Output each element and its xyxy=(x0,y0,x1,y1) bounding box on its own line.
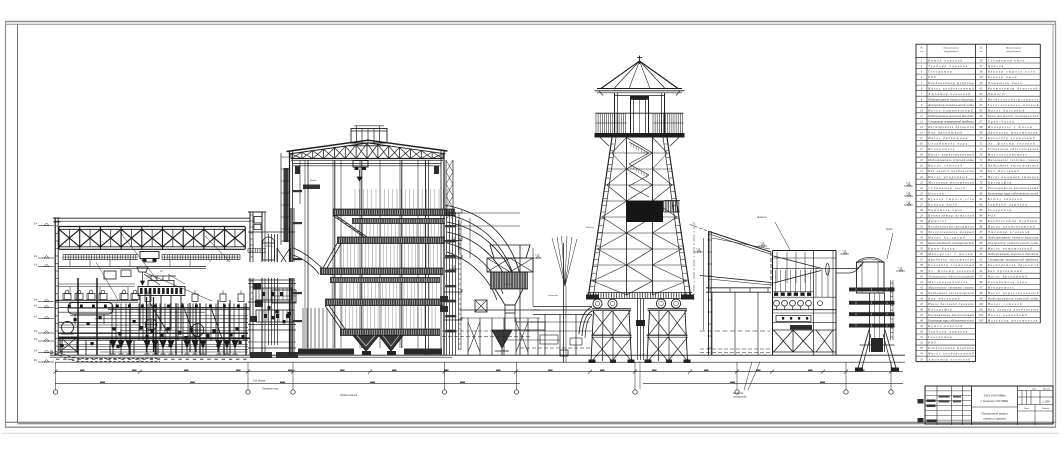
svg-text:Подъемник пассажирский: Подъемник пассажирский xyxy=(927,290,974,295)
svg-text:Мельница молотковая: Мельница молотковая xyxy=(987,319,1038,323)
svg-text:Эжектор основной: Эжектор основной xyxy=(928,91,970,96)
svg-text:Подогреватель высокого давлени: Подогреватель высокого давления xyxy=(927,114,974,118)
svg-text:Монорельс с талью: Монорельс с талью xyxy=(987,125,1033,129)
svg-text:Вентилятор дутьевой: Вентилятор дутьевой xyxy=(988,85,1038,90)
svg-text:Ось здания: Ось здания xyxy=(253,380,266,383)
svg-text:Насос аварийный: Насос аварийный xyxy=(987,312,1027,317)
svg-text:Испаритель: Испаритель xyxy=(987,285,1015,289)
svg-text:Охладитель пара: Охладитель пара xyxy=(988,280,1027,284)
svg-text:Линия для: Линия для xyxy=(547,294,558,297)
svg-text:Насос конденсатный: Насос конденсатный xyxy=(927,351,974,356)
svg-text:Бункер пыли: Бункер пыли xyxy=(987,75,1017,79)
svg-text:Насос багерный: Насос багерный xyxy=(927,235,965,240)
svg-text:Маслоохладитель: Маслоохладитель xyxy=(987,153,1028,157)
svg-text:101: 101 xyxy=(979,308,984,311)
svg-text:Дробилка молотковая: Дробилка молотковая xyxy=(987,131,1038,135)
svg-text:Питатель пыли: Питатель пыли xyxy=(927,208,962,212)
svg-text:Бункер сырого угля: Бункер сырого угля xyxy=(987,70,1035,74)
svg-text:Бак дренажный: Бак дренажный xyxy=(927,130,962,135)
svg-text:1:200: 1:200 xyxy=(1042,400,1050,404)
svg-text:Конденсатор турбины: Конденсатор турбины xyxy=(927,346,974,350)
svg-text:Конвейер ленточный: Конвейер ленточный xyxy=(927,262,974,267)
svg-text:100: 100 xyxy=(979,303,984,306)
svg-text:Генератор: Генератор xyxy=(987,208,1012,212)
svg-text:Калорифер: Калорифер xyxy=(987,180,1012,184)
svg-text:Кран мостовой электрический: Кран мостовой электрический xyxy=(927,240,974,245)
svg-text:Золоуловитель мокрый: Золоуловитель мокрый xyxy=(988,102,1039,107)
svg-text:Установка обессоливания: Установка обессоливания xyxy=(988,147,1039,151)
svg-text:Сепаратор непрерывной продувки: Сепаратор непрерывной продувки xyxy=(928,118,974,123)
svg-text:Эжектор основной: Эжектор основной xyxy=(988,229,1030,234)
svg-text:ТЭЦ 1000 МВт: ТЭЦ 1000 МВт xyxy=(983,394,1006,398)
svg-text:Расширитель растопочный: Расширитель растопочный xyxy=(987,185,1039,190)
svg-text:Бак масляный: Бак масляный xyxy=(927,295,960,300)
svg-text:Насос конденсатный: Насос конденсатный xyxy=(987,224,1035,229)
svg-text:Отметка пола: Отметка пола xyxy=(262,388,279,391)
svg-text:Вентилятор дутьевой: Вентилятор дутьевой xyxy=(928,212,974,217)
svg-text:Подогреватель низкого давления: Подогреватель низкого давления xyxy=(987,236,1039,240)
svg-text:Подогреватель низкого давления: Подогреватель низкого давления xyxy=(927,97,974,101)
svg-text:Таг. для: Таг. для xyxy=(505,283,513,286)
svg-text:Труба: Труба xyxy=(886,228,893,231)
svg-text:Эл. фильтр золовой: Эл. фильтр золовой xyxy=(928,268,974,273)
svg-text:Золоуловитель мокрый: Золоуловитель мокрый xyxy=(928,229,974,234)
svg-text:Воздухоподогреватель: Воздухоподогреватель xyxy=(988,97,1039,101)
svg-text:Котел паровой: Котел паровой xyxy=(927,323,962,328)
svg-text:Насос багерной станции: Насос багерной станции xyxy=(927,301,974,306)
svg-text:Сепаратор непрерывной продувки: Сепаратор непрерывной продувки xyxy=(988,257,1039,262)
svg-text:Листов: Листов xyxy=(1041,408,1049,410)
svg-text:Масшт.: Масшт. xyxy=(1042,389,1051,391)
svg-text:Воздухоподогреватель: Воздухоподогреватель xyxy=(928,225,974,229)
svg-text:Котел паровой: Котел паровой xyxy=(927,58,962,63)
svg-text:с блоками 250 МВт: с блоками 250 МВт xyxy=(981,399,1009,403)
svg-text:Дымосос: Дымосос xyxy=(756,216,768,219)
svg-text:Котел: Котел xyxy=(309,179,316,182)
svg-text:Установка обессоливания: Установка обессоливания xyxy=(928,274,974,278)
svg-text:Деаэратор питательной воды: Деаэратор питательной воды xyxy=(927,102,974,107)
svg-text:Конденсатор турбины: Конденсатор турбины xyxy=(927,81,974,85)
svg-text:Монорельс с талью: Монорельс с талью xyxy=(927,252,973,256)
svg-text:Насос питательный: Насос питательный xyxy=(987,246,1033,251)
svg-text:Эжектор основной: Эжектор основной xyxy=(928,356,970,361)
svg-text:Подогреватель высокого давлени: Подогреватель высокого давления xyxy=(987,252,1039,256)
svg-text:Насос циркуляционный: Насос циркуляционный xyxy=(927,152,974,157)
svg-text:Расширитель дренажей: Расширитель дренажей xyxy=(927,124,974,129)
svg-text:Генератор: Генератор xyxy=(927,70,952,74)
svg-text:Насос питательный: Насос питательный xyxy=(927,107,973,112)
svg-text:Бак масляный: Бак масляный xyxy=(987,168,1020,173)
svg-text:Расширитель дренажей: Расширитель дренажей xyxy=(987,262,1039,267)
svg-text:Циклон: Циклон xyxy=(927,191,944,195)
svg-text:Расширитель растопочный: Расширитель растопочный xyxy=(927,312,974,317)
svg-text:Насос сетевой: Насос сетевой xyxy=(987,301,1022,306)
svg-text:главного корпуса: главного корпуса xyxy=(983,417,1006,421)
svg-text:Маслонасос системы смазки: Маслонасос системы смазки xyxy=(927,285,974,289)
svg-text:Насос багерной станции: Насос багерной станции xyxy=(987,174,1039,179)
svg-text:Мельница молотковая: Мельница молотковая xyxy=(927,180,974,184)
svg-text:РОУ: РОУ xyxy=(927,341,937,345)
svg-text:оборудования: оборудования xyxy=(944,50,959,53)
svg-text:Маслонасос системы смазки: Маслонасос системы смазки xyxy=(987,158,1039,162)
svg-text:Коллектор пара собственных нуж: Коллектор пара собственных нужд xyxy=(927,319,974,323)
svg-text:Лист: Лист xyxy=(1023,408,1030,410)
svg-text:Подъемник пассажирский: Подъемник пассажирский xyxy=(987,163,1039,168)
svg-text:РОУ: РОУ xyxy=(927,75,937,79)
svg-text:Насос циркуляционный: Насос циркуляционный xyxy=(987,290,1039,295)
svg-text:оборудования: оборудования xyxy=(1006,50,1021,53)
svg-text:102: 102 xyxy=(979,314,984,317)
svg-text:РОУ: РОУ xyxy=(987,213,997,217)
svg-text:Дробилка молотковая: Дробилка молотковая xyxy=(927,258,974,262)
svg-text:Охладитель пара: Охладитель пара xyxy=(928,142,968,146)
svg-text:Лит.: Лит. xyxy=(1031,389,1037,391)
svg-text:Насос аварийный: Насос аварийный xyxy=(927,174,968,179)
svg-text:Котел паровой: Котел паровой xyxy=(987,196,1022,201)
svg-text:Испаритель: Испаритель xyxy=(927,147,955,151)
svg-text:Циклон: Циклон xyxy=(987,64,1004,68)
svg-text:Маслоохладитель: Маслоохладитель xyxy=(927,280,968,284)
svg-text:Подвеска: Подвеска xyxy=(732,392,744,395)
svg-text:Коллектор пара собственных нуж: Коллектор пара собственных нужд xyxy=(987,191,1039,195)
svg-text:103: 103 xyxy=(979,320,984,323)
svg-text:Подогреватель сетевой воды: Подогреватель сетевой воды xyxy=(987,295,1038,300)
svg-text:Подогреватель сетевой воды: Подогреватель сетевой воды xyxy=(927,157,974,162)
svg-text:Бак запаса конденсата: Бак запаса конденсата xyxy=(927,169,974,173)
svg-text:Кран мостовой электрический: Кран мостовой электрический xyxy=(987,113,1039,118)
svg-text:Питатель пыли: Питатель пыли xyxy=(987,81,1022,85)
svg-text:Насос сетевой: Насос сетевой xyxy=(927,163,962,168)
svg-text:Насос багерный: Насос багерный xyxy=(987,107,1025,112)
svg-text:Поперечный разрез: Поперечный разрез xyxy=(980,411,1008,416)
svg-text:Бункер пыли: Бункер пыли xyxy=(927,202,957,206)
svg-text:Кабина: Кабина xyxy=(585,226,594,229)
svg-text:Подвал кабелей: Подвал кабелей xyxy=(339,394,358,397)
svg-text:Насос конденсатный: Насос конденсатный xyxy=(927,85,974,90)
svg-text:газопровода: газопровода xyxy=(733,396,747,399)
svg-text:Деаэратор питательной воды: Деаэратор питательной воды xyxy=(987,240,1038,245)
svg-text:Конденсатор турбины: Конденсатор турбины xyxy=(987,219,1037,223)
svg-text:Бункер сырого угля: Бункер сырого угля xyxy=(927,197,974,201)
svg-text:Калорифер: Калорифер xyxy=(927,307,952,311)
svg-text:Генератор: Генератор xyxy=(927,335,952,339)
svg-text:Бак дренажный: Бак дренажный xyxy=(987,268,1022,273)
svg-text:Конвейер ленточный: Конвейер ленточный xyxy=(987,135,1035,140)
